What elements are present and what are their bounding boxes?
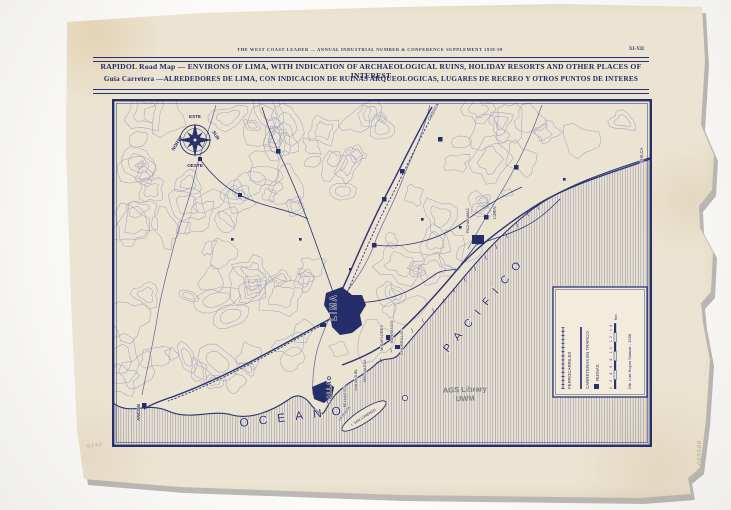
contour-squiggle — [140, 346, 171, 368]
legend-roads-label: CARRETERAS EN TRAFICO — [585, 331, 590, 389]
beach-tick — [422, 318, 423, 322]
lima-environs-map: OCEANO PACIFICO AGS Library UWM ESTE NOR… — [112, 99, 652, 447]
river-chillon — [142, 105, 216, 395]
contour-squiggle — [269, 270, 292, 287]
contour-squiggle — [329, 183, 356, 200]
contour-squiggle — [180, 175, 196, 190]
contour-squiggle — [214, 211, 234, 233]
legend-ruins-label: RUINAS — [595, 364, 600, 381]
compass-south-label: SUR — [211, 130, 221, 141]
contour-squiggle — [112, 333, 139, 383]
contour-squiggle — [259, 99, 277, 120]
beach-tick — [433, 308, 434, 312]
scale-unit-label: Km. — [614, 313, 618, 320]
map-place-label: BELLAVISTA — [343, 385, 347, 407]
contour-squiggle — [176, 221, 190, 235]
contour-squiggle — [614, 115, 630, 127]
contour-squiggle — [225, 372, 247, 394]
contour-squiggle — [239, 281, 266, 304]
map-title-spanish: Guía Carretera —ALREDEDORES DE LIMA, CON… — [95, 75, 647, 83]
contour-squiggle — [340, 154, 357, 176]
contour-squiggle — [376, 281, 396, 306]
contour-squiggle — [231, 254, 273, 290]
map-place-label: MIRAFLORES — [379, 325, 384, 351]
contour-squiggle — [151, 206, 180, 249]
contour-squiggle — [124, 99, 163, 131]
contour-squiggle — [308, 115, 338, 147]
contour-squiggle — [514, 103, 547, 132]
map-place-label: ANCON — [136, 403, 141, 421]
compass-west-label: OESTE — [187, 163, 203, 168]
suburb-block — [320, 323, 326, 327]
contour-squiggle — [452, 136, 473, 148]
contour-squiggle — [335, 187, 351, 197]
legend-railways-label: FERROCARRILES — [567, 352, 572, 389]
contour-squiggle — [564, 123, 602, 159]
contour-squiggle — [534, 124, 552, 141]
compass-north-label: NORTE — [171, 135, 184, 151]
map-place-label: PACHACAMAC — [466, 208, 470, 233]
newspaper-masthead: THE WEST COAST LEADER — ANNUAL INDUSTRIA… — [100, 47, 640, 52]
contour-squiggle — [183, 293, 195, 300]
contour-squiggle — [420, 224, 452, 256]
road-panamericana-north — [144, 319, 330, 409]
pencil-annotation-corner: 9140 — [87, 442, 104, 450]
beach-tick — [391, 348, 392, 352]
contour-squiggle — [262, 189, 276, 203]
contour-squiggle — [181, 348, 193, 367]
contour-squiggle — [194, 363, 203, 379]
contour-squiggle — [233, 172, 266, 199]
contour-squiggle — [193, 287, 240, 313]
contour-squiggle — [165, 347, 180, 360]
contour-squiggle — [115, 203, 149, 247]
contour-squiggle — [269, 285, 295, 308]
double-rule-top — [93, 57, 649, 62]
contour-squiggle — [379, 114, 385, 121]
contour-squiggle — [315, 121, 333, 139]
contour-squiggle — [385, 284, 406, 304]
contour-squiggle — [460, 99, 496, 124]
compass-east-label: ESTE — [189, 114, 201, 119]
contour-squiggle — [206, 351, 229, 372]
contour-squiggle — [213, 304, 249, 328]
contour-squiggle — [479, 197, 487, 205]
contour-squiggle — [220, 309, 241, 323]
map-place-label: LIMA — [329, 293, 338, 321]
contour-squiggle — [119, 350, 156, 389]
contour-squiggle — [198, 344, 238, 380]
contour-squiggle — [117, 156, 156, 183]
contour-squiggle — [243, 365, 253, 373]
contour-squiggle — [179, 290, 200, 302]
contour-squiggle — [476, 195, 490, 209]
contour-squiggle — [135, 161, 145, 171]
contour-squiggle — [218, 207, 238, 228]
double-rule-bottom — [93, 89, 649, 94]
contour-squiggle — [280, 347, 305, 371]
suburb-block — [344, 293, 350, 297]
contour-squiggle — [334, 147, 363, 184]
map-place-label: CHILCA — [639, 147, 644, 163]
map-place-label: MAGDALENA — [363, 359, 367, 382]
page-reference: XI-XII — [596, 46, 644, 52]
contour-squiggle — [247, 122, 257, 128]
contour-squiggle — [405, 184, 424, 207]
map-sheet-paper: THE WEST COAST LEADER — ANNUAL INDUSTRIA… — [0, 0, 731, 510]
contour-squiggle — [501, 189, 513, 197]
contour-squiggle — [407, 253, 456, 286]
suburb-block — [348, 313, 356, 318]
contour-squiggle — [444, 154, 470, 172]
fronton-islet — [402, 395, 407, 400]
contour-squiggle — [426, 231, 444, 249]
contour-squiggle — [191, 357, 207, 385]
contour-squiggle — [203, 241, 218, 256]
contour-squiggle — [370, 115, 395, 140]
contour-squiggle — [216, 110, 239, 126]
photographed-map-scan: THE WEST COAST LEADER — ANNUAL INDUSTRIA… — [0, 0, 731, 510]
contour-squiggle — [243, 120, 261, 131]
stamp-line2: UWM — [456, 394, 475, 404]
contour-squiggle — [144, 183, 159, 197]
contour-squiggle — [112, 344, 132, 373]
legend-box: FERROCARRILES CARRETERAS EN TRAFICO RUIN… — [553, 287, 647, 397]
contour-squiggle — [144, 99, 186, 138]
contour-squiggle — [129, 202, 150, 218]
contour-squiggle — [193, 189, 225, 213]
pachacamac-ruins-block — [472, 235, 484, 244]
contour-squiggle — [608, 110, 636, 131]
railway-chosica — [341, 109, 436, 306]
compass-rose: ESTE NORTE SUR OESTE — [171, 114, 221, 168]
contour-squiggle — [506, 140, 538, 178]
contour-squiggle — [321, 151, 348, 182]
contour-squiggle — [185, 201, 214, 232]
map-place-label: BARRANCO — [389, 320, 394, 343]
contour-squiggle — [203, 292, 230, 307]
map-place-label: SAN MIGUEL — [354, 369, 358, 391]
map-place-label: CHORRILLOS — [399, 329, 404, 355]
contour-squiggle — [423, 198, 457, 236]
contour-squiggle — [372, 242, 425, 286]
contour-squiggle — [121, 145, 156, 180]
contour-squiggle — [430, 206, 450, 228]
contour-squiggle — [533, 121, 563, 145]
legend-credit: Dib. Luis Hoyos Salazar - 1938 — [627, 333, 632, 389]
contour-squiggle — [329, 341, 349, 357]
beach-tick — [412, 328, 413, 332]
contour-squiggle — [130, 282, 158, 309]
map-place-label: LURIN — [492, 206, 497, 219]
contour-squiggle — [339, 105, 371, 132]
map-place-label: CALLAO — [327, 375, 333, 404]
contour-squiggle — [239, 363, 255, 377]
contour-squiggle — [227, 185, 256, 213]
ruins-symbol — [594, 384, 599, 389]
contour-squiggle — [208, 105, 248, 132]
contour-squiggle — [305, 156, 321, 167]
